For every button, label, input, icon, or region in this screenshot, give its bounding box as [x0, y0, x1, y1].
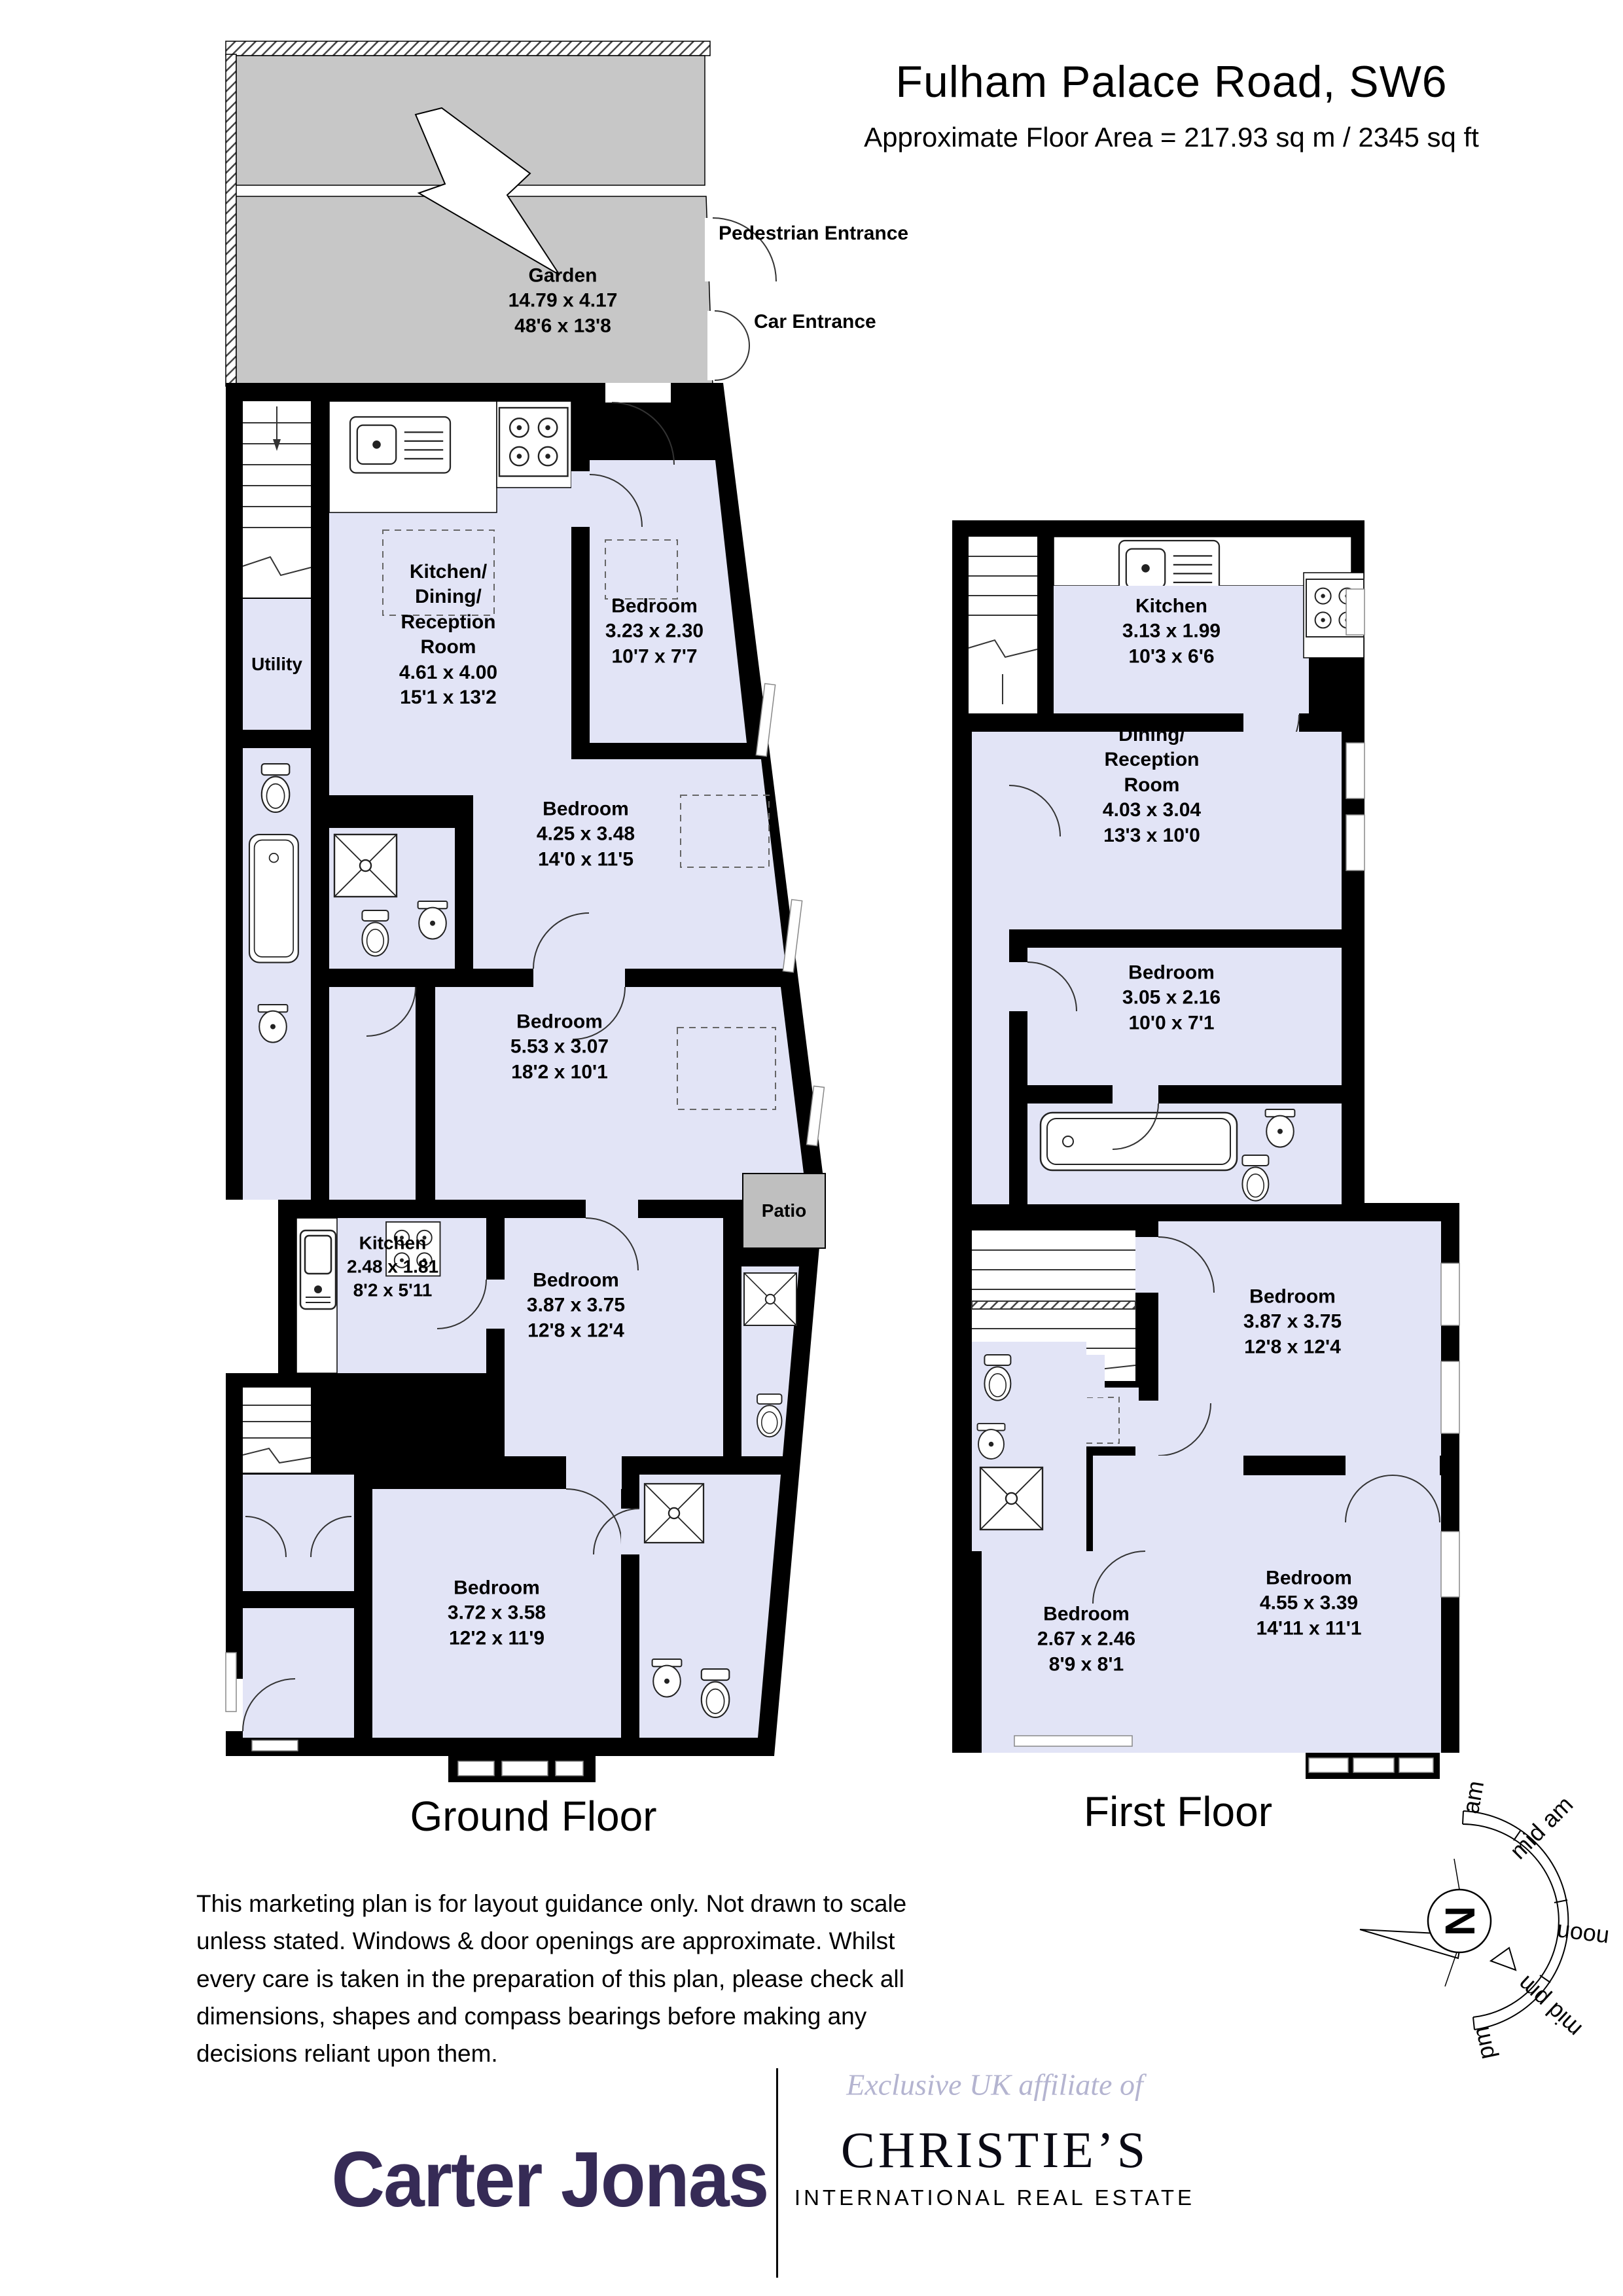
compass-label-am: am	[1457, 1779, 1489, 1816]
room-label-ff-dining: Dining/ Reception Room 4.03 x 3.04 13'3 …	[1103, 723, 1201, 848]
page-title: Fulham Palace Road, SW6	[895, 56, 1447, 107]
car-entrance-label: Car Entrance	[754, 311, 876, 333]
logo-divider	[776, 2068, 778, 2278]
car-door-arc-1	[715, 311, 749, 346]
compass-north: N	[1436, 1906, 1484, 1936]
pedestrian-entrance-label: Pedestrian Entrance	[719, 223, 908, 245]
first-floor-plan	[942, 511, 1466, 1784]
door-opening	[573, 969, 625, 987]
room-label-gf-bedroom3: Bedroom 5.53 x 3.07 18'2 x 10'1	[510, 1009, 609, 1085]
floorplan-page: Fulham Palace Road, SW6 Approximate Floo…	[0, 0, 1623, 2296]
pedestrian-door-opening	[705, 218, 715, 281]
door-opening	[1346, 1456, 1440, 1475]
door-opening	[621, 1509, 639, 1554]
door-opening	[566, 1456, 622, 1489]
compass: N am mid am noon mid pm pm	[1342, 1761, 1603, 2068]
room-label-gf-kitchen: Kitchen 2.48 x 1.81 8'2 x 5'11	[347, 1231, 438, 1301]
room-label-gf-bedroom4: Bedroom 3.87 x 3.75 12'8 x 12'4	[527, 1268, 625, 1343]
compass-arc-cap	[1463, 1811, 1463, 1824]
floor-title-first: First Floor	[1084, 1787, 1272, 1836]
floor-title-ground: Ground Floor	[410, 1792, 656, 1840]
door-opening	[1086, 1355, 1105, 1397]
room-label-ff-bedroom3: Bedroom 2.67 x 2.46 8'9 x 8'1	[1037, 1602, 1135, 1677]
compass-axis	[1445, 1952, 1457, 1986]
compass-tail	[1491, 1948, 1516, 1970]
room-label-ff-bedroom2: Bedroom 3.87 x 3.75 12'8 x 12'4	[1243, 1284, 1342, 1359]
door-opening	[1243, 713, 1299, 732]
exterior-notch	[226, 1200, 278, 1373]
door-opening	[586, 1200, 638, 1218]
room-label-ff-kitchen: Kitchen 3.13 x 1.99 10'3 x 6'6	[1122, 594, 1221, 669]
door-opening	[1113, 1085, 1158, 1103]
hallway	[329, 987, 416, 1200]
door-opening	[571, 471, 590, 527]
door-opening	[486, 1280, 505, 1329]
door-opening	[1009, 962, 1027, 1011]
garden-boundary-hatch-top	[226, 41, 710, 56]
car-door-opening	[707, 311, 718, 380]
corridor	[1224, 1551, 1243, 1753]
compass-label-noon: noon	[1555, 1919, 1610, 1952]
garden-door-opening	[605, 383, 671, 403]
room-label-utility: Utility	[251, 653, 302, 676]
bedroom3-room	[435, 987, 807, 1200]
partner-sub-label: INTERNATIONAL REAL ESTATE	[794, 2185, 1195, 2210]
affiliate-note: Exclusive UK affiliate of	[846, 2068, 1143, 2102]
room-label-gf-bedroom1: Bedroom 3.23 x 2.30 10'7 x 7'7	[605, 594, 704, 669]
door-opening	[1135, 1401, 1158, 1456]
room-label-gf-bedroom5: Bedroom 3.72 x 3.58 12'2 x 11'9	[448, 1575, 546, 1651]
room-label-patio: Patio	[762, 1199, 806, 1223]
garden-boundary-hatch-left	[226, 54, 236, 386]
room-label-ff-bedroom4: Bedroom 4.55 x 3.39 14'11 x 11'1	[1256, 1566, 1361, 1641]
room-label-kdr: Kitchen/ Dining/ Reception Room 4.61 x 4…	[399, 560, 497, 710]
compass-arc-cap	[1473, 2017, 1474, 2030]
partner-christies: CHRISTIE’S	[841, 2121, 1149, 2179]
compass-axis	[1454, 1859, 1459, 1890]
room-label-ff-bedroom1: Bedroom 3.05 x 2.16 10'0 x 7'1	[1122, 960, 1221, 1035]
door-opening	[1135, 1237, 1158, 1293]
bathroom-left	[243, 748, 311, 1200]
disclaimer-text: This marketing plan is for layout guidan…	[196, 1885, 929, 2073]
garden-drawing	[219, 36, 965, 393]
hallway	[972, 929, 1009, 1204]
door-opening	[1093, 1533, 1145, 1551]
compass-label-pm: pm	[1467, 2024, 1501, 2062]
car-door-arc-2	[715, 346, 749, 380]
garden-label: Garden 14.79 x 4.17 48'6 x 13'8	[508, 263, 618, 338]
room-label-gf-bedroom2: Bedroom 4.25 x 3.48 14'0 x 11'5	[537, 797, 635, 872]
hall-wall	[243, 1591, 354, 1608]
brand-carter-jonas: Carter Jonas	[331, 2134, 768, 2225]
